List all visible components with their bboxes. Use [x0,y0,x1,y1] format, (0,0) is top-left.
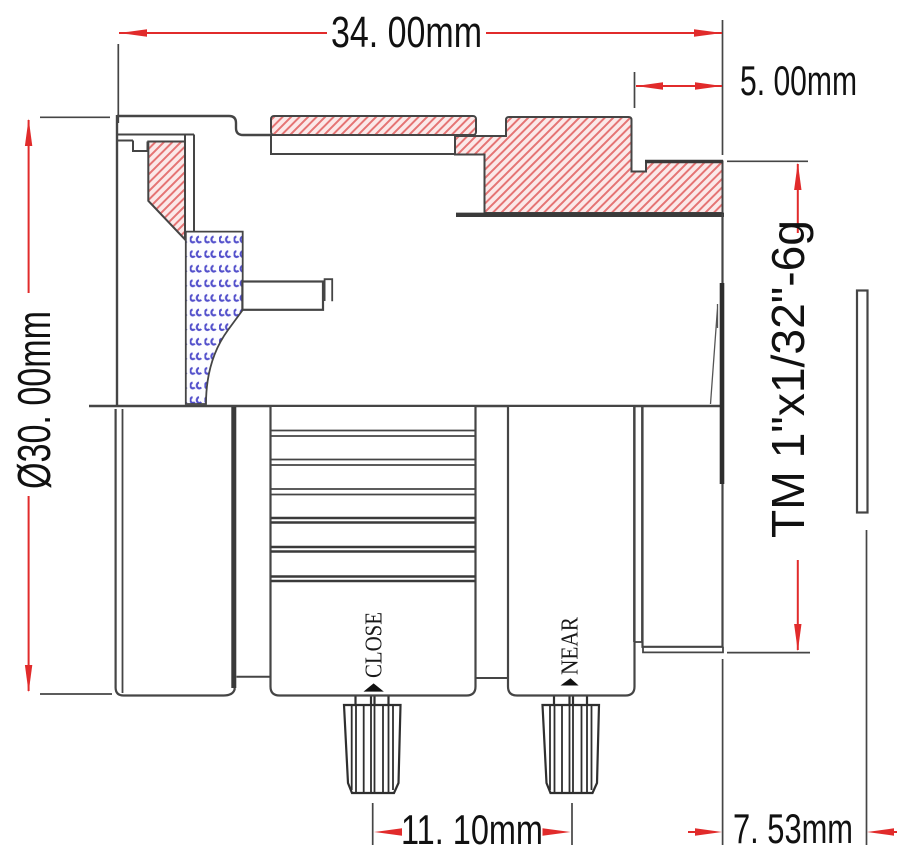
svg-text:34. 00mm: 34. 00mm [331,8,482,57]
svg-text:7. 53mm: 7. 53mm [733,805,853,852]
svg-text:Ø30. 00mm: Ø30. 00mm [8,311,60,489]
svg-text:TM 1"x1/32"-6g: TM 1"x1/32"-6g [762,220,814,538]
svg-text:11. 10mm: 11. 10mm [401,806,543,853]
svg-text:NEAR: NEAR [558,617,584,675]
svg-text:CLOSE: CLOSE [362,612,388,678]
svg-text:5. 00mm: 5. 00mm [740,57,857,104]
